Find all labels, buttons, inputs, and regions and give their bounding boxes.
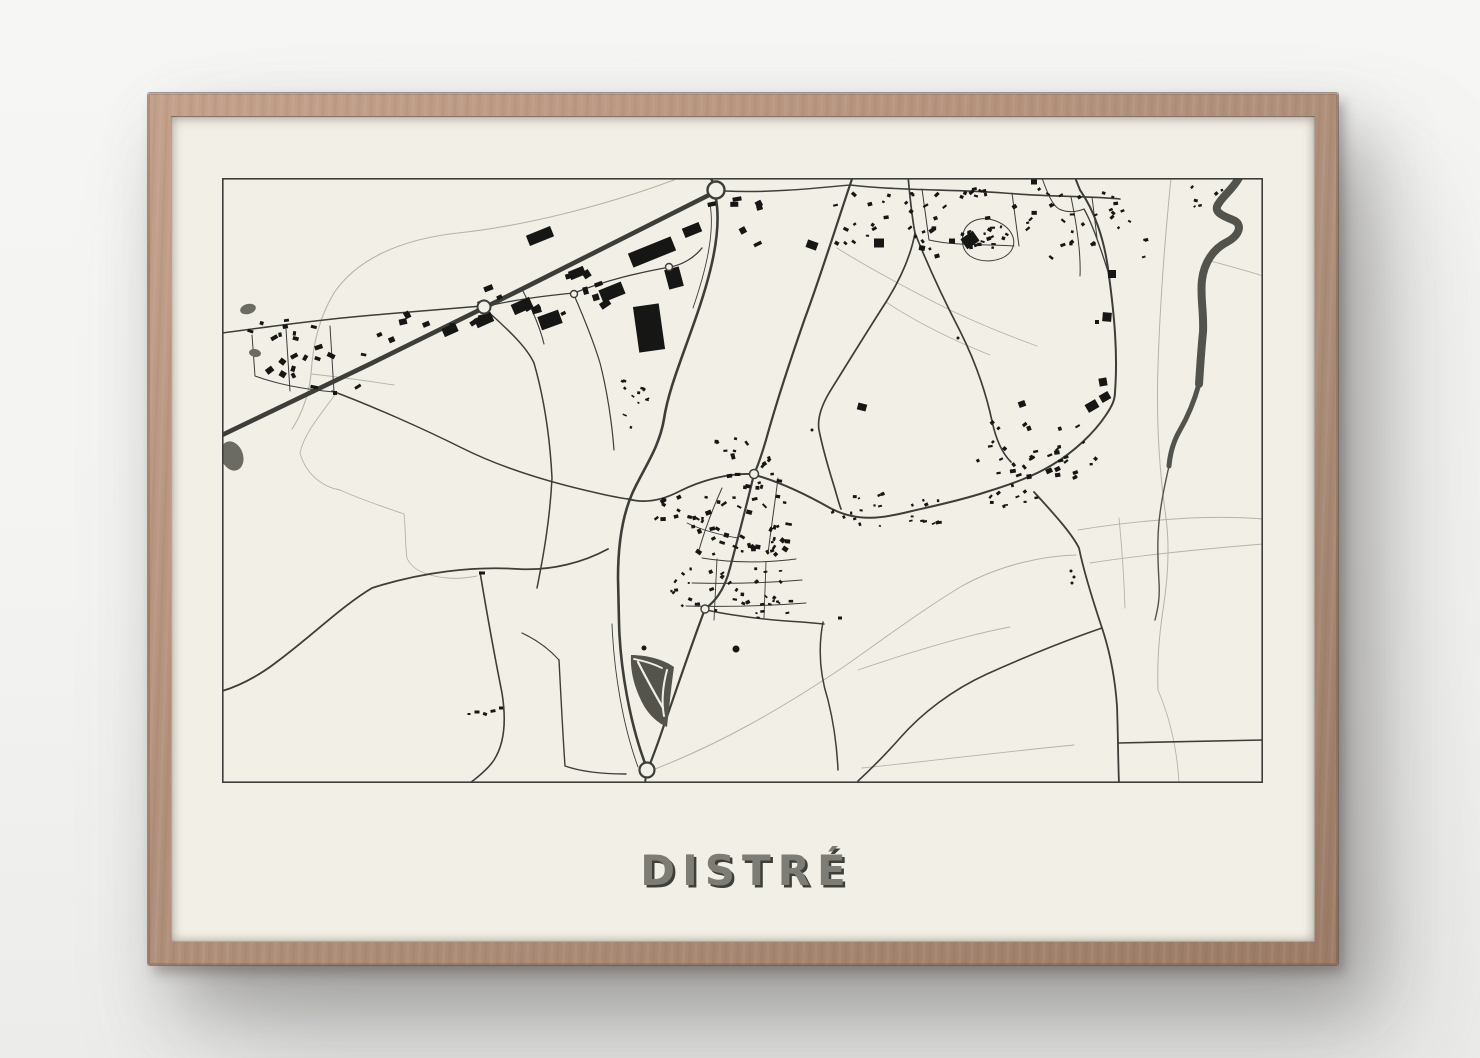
poster-title: DISTRÉ [171, 846, 1315, 896]
map-artwork [222, 178, 1263, 783]
picture-frame: DISTRÉ [148, 93, 1338, 965]
wall-background: DISTRÉ [0, 0, 1480, 1058]
poster-paper: DISTRÉ [171, 116, 1315, 942]
